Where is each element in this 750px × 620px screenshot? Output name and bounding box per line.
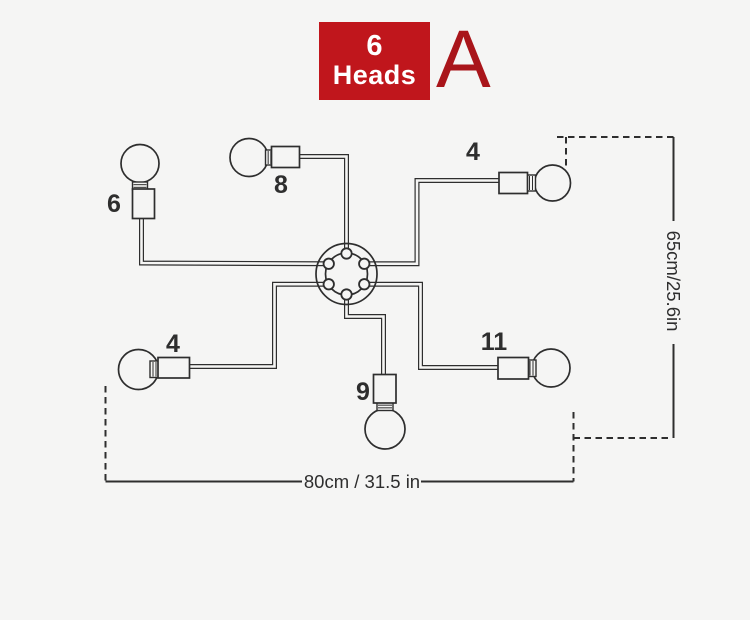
arm-length-label: 4 [466, 138, 480, 166]
arm-length-label: 4 [166, 330, 180, 358]
bulb-socket [158, 358, 190, 379]
lamp-diagram: 65cm/25.6in80cm / 31.5 in6841194 [0, 0, 750, 620]
arm-tube-inner [142, 217, 329, 264]
hub-bolt [359, 279, 369, 289]
arm-tube-outline [190, 284, 329, 366]
bulb-socket [272, 147, 300, 168]
hub-bolt [341, 248, 351, 258]
bulb [365, 409, 405, 449]
product-spec-image: 6 Heads A 65cm/25.6in80cm / 31.5 in68411… [0, 0, 750, 620]
width-dimension-label: 80cm / 31.5 in [304, 471, 420, 492]
hub-bolt [324, 279, 334, 289]
arm-tube-outline [142, 217, 329, 264]
arm-tube-outline [297, 157, 347, 254]
arm-length-label: 9 [356, 378, 370, 406]
arm-tube-outline [364, 181, 500, 264]
hub-bolt [359, 259, 369, 269]
hub-bolt [324, 259, 334, 269]
arm-tube-inner [364, 181, 500, 264]
arm-length-label: 8 [274, 171, 288, 199]
arm-tube-inner [190, 284, 329, 366]
bulb [532, 349, 570, 387]
bulb [121, 145, 159, 183]
arm-length-label: 11 [481, 328, 508, 356]
bulb-socket [499, 173, 528, 194]
bulb-socket [133, 189, 155, 219]
hub-bolt [341, 289, 351, 299]
arm-tube-inner [347, 295, 384, 377]
bulb-socket [498, 358, 529, 380]
height-dimension-label: 65cm/25.6in [663, 231, 684, 332]
arm-tube-inner [297, 157, 347, 254]
arm-length-label: 6 [107, 190, 121, 218]
bulb [535, 165, 571, 201]
bulb [230, 139, 268, 177]
bulb-socket [374, 375, 397, 404]
arm-tube-outline [347, 295, 384, 377]
